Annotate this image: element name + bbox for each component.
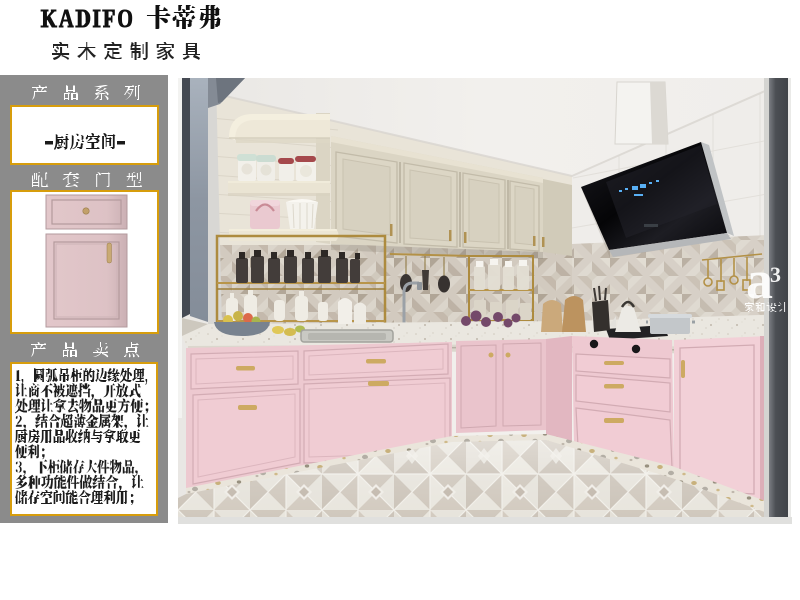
svg-text:a: a (746, 250, 773, 310)
svg-text:3: 3 (770, 262, 781, 287)
